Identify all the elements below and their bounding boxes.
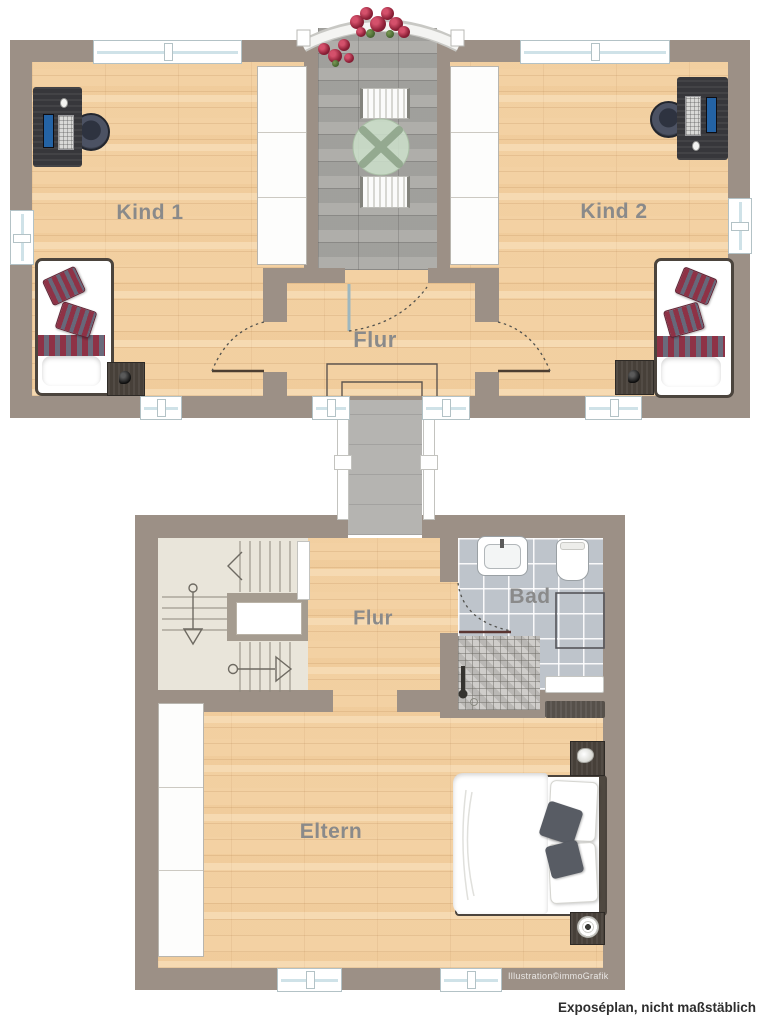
wall-kind2-flur-lower bbox=[475, 372, 499, 396]
kind2-mouse bbox=[692, 141, 700, 151]
window-eltern-bottom-left bbox=[277, 968, 342, 992]
connector-rail-post-right bbox=[420, 455, 438, 470]
connector-rail-post-left bbox=[334, 455, 352, 470]
kind1-duvet bbox=[42, 356, 101, 386]
flower-leaf bbox=[332, 60, 339, 67]
wardrobe-divider bbox=[258, 197, 306, 198]
wall-flur-bad-bottom bbox=[440, 633, 458, 718]
wall-flur-eltern-stub bbox=[397, 690, 440, 712]
wardrobe-divider bbox=[159, 787, 203, 788]
kind1-monitor bbox=[43, 114, 54, 148]
window-kind1-top bbox=[93, 40, 242, 64]
window-kind1-bottom bbox=[140, 396, 182, 420]
lower-wall-top-right bbox=[422, 515, 625, 538]
kind2-wardrobe bbox=[450, 66, 499, 265]
room-label-bad: Bad bbox=[509, 585, 550, 609]
wardrobe-divider bbox=[451, 197, 498, 198]
toilet-tank bbox=[560, 542, 585, 550]
room-label-eltern: Eltern bbox=[300, 820, 363, 844]
flower bbox=[398, 26, 410, 38]
kind2-keyboard bbox=[685, 96, 701, 136]
room-label-kind1: Kind 1 bbox=[116, 201, 183, 225]
shower-mosaic bbox=[458, 636, 540, 710]
window-kind2-top bbox=[520, 40, 670, 64]
eltern-wardrobe bbox=[158, 703, 204, 957]
window-eltern-bottom-right bbox=[440, 968, 502, 992]
bathroom-sink bbox=[477, 536, 528, 576]
scale-footnote: Exposéplan, nicht maßstäblich bbox=[558, 1000, 756, 1015]
wardrobe-divider bbox=[258, 132, 306, 133]
sink-faucet bbox=[500, 539, 504, 548]
wall-kind1-flur-lower bbox=[263, 372, 287, 396]
stair-connector-floor bbox=[348, 400, 422, 535]
illustration-credit: Illustration©immoGrafik bbox=[508, 971, 609, 981]
wardrobe-divider bbox=[451, 132, 498, 133]
kind1-blanket-band bbox=[38, 335, 105, 356]
floorplan-illustration: Kind 1 Flur Kind 2 Flur Bad Eltern Illus… bbox=[0, 0, 761, 1023]
kind1-wardrobe bbox=[257, 66, 307, 265]
window-kind2-bottom bbox=[585, 396, 642, 420]
wall-balcony-flur-left bbox=[263, 268, 345, 283]
lower-wall-top-left bbox=[135, 515, 348, 538]
eltern-headboard bbox=[599, 777, 605, 914]
wall-flur-bad-top bbox=[440, 538, 458, 582]
lower-wall-left bbox=[135, 515, 158, 990]
kind1-keyboard bbox=[58, 115, 74, 150]
kind2-duvet bbox=[661, 357, 721, 387]
wall-under-shower bbox=[455, 710, 545, 718]
kind2-blanket-band bbox=[657, 336, 725, 357]
wall-balcony-flur-right bbox=[428, 268, 499, 283]
stair-handrail bbox=[297, 541, 310, 600]
bathroom-radiator bbox=[545, 676, 604, 693]
stair-void bbox=[236, 602, 302, 635]
toilet bbox=[556, 539, 589, 581]
balcony-bench-top bbox=[360, 88, 410, 119]
flower bbox=[344, 53, 354, 63]
flower bbox=[338, 39, 350, 51]
window-flur-bottom-right bbox=[422, 396, 470, 420]
flower-leaf bbox=[386, 30, 394, 38]
window-flur-bottom-left bbox=[312, 396, 350, 420]
wardrobe-divider bbox=[159, 870, 203, 871]
lower-wall-right bbox=[603, 515, 625, 990]
eltern-dresser bbox=[545, 701, 605, 718]
eltern-duvet bbox=[453, 773, 548, 914]
room-label-flur-lower: Flur bbox=[353, 608, 393, 631]
balcony-bench-bottom bbox=[360, 176, 410, 208]
eltern-lamp-bottom bbox=[577, 916, 599, 938]
flower-box-left bbox=[316, 37, 358, 69]
flower bbox=[356, 27, 366, 37]
window-kind1-left bbox=[10, 210, 34, 265]
room-label-flur-upper: Flur bbox=[353, 327, 397, 353]
balcony-wall-right bbox=[437, 40, 450, 270]
window-kind2-right bbox=[728, 198, 752, 254]
kind1-mouse bbox=[60, 98, 68, 108]
kind2-monitor bbox=[706, 97, 717, 133]
room-label-kind2: Kind 2 bbox=[580, 200, 647, 224]
